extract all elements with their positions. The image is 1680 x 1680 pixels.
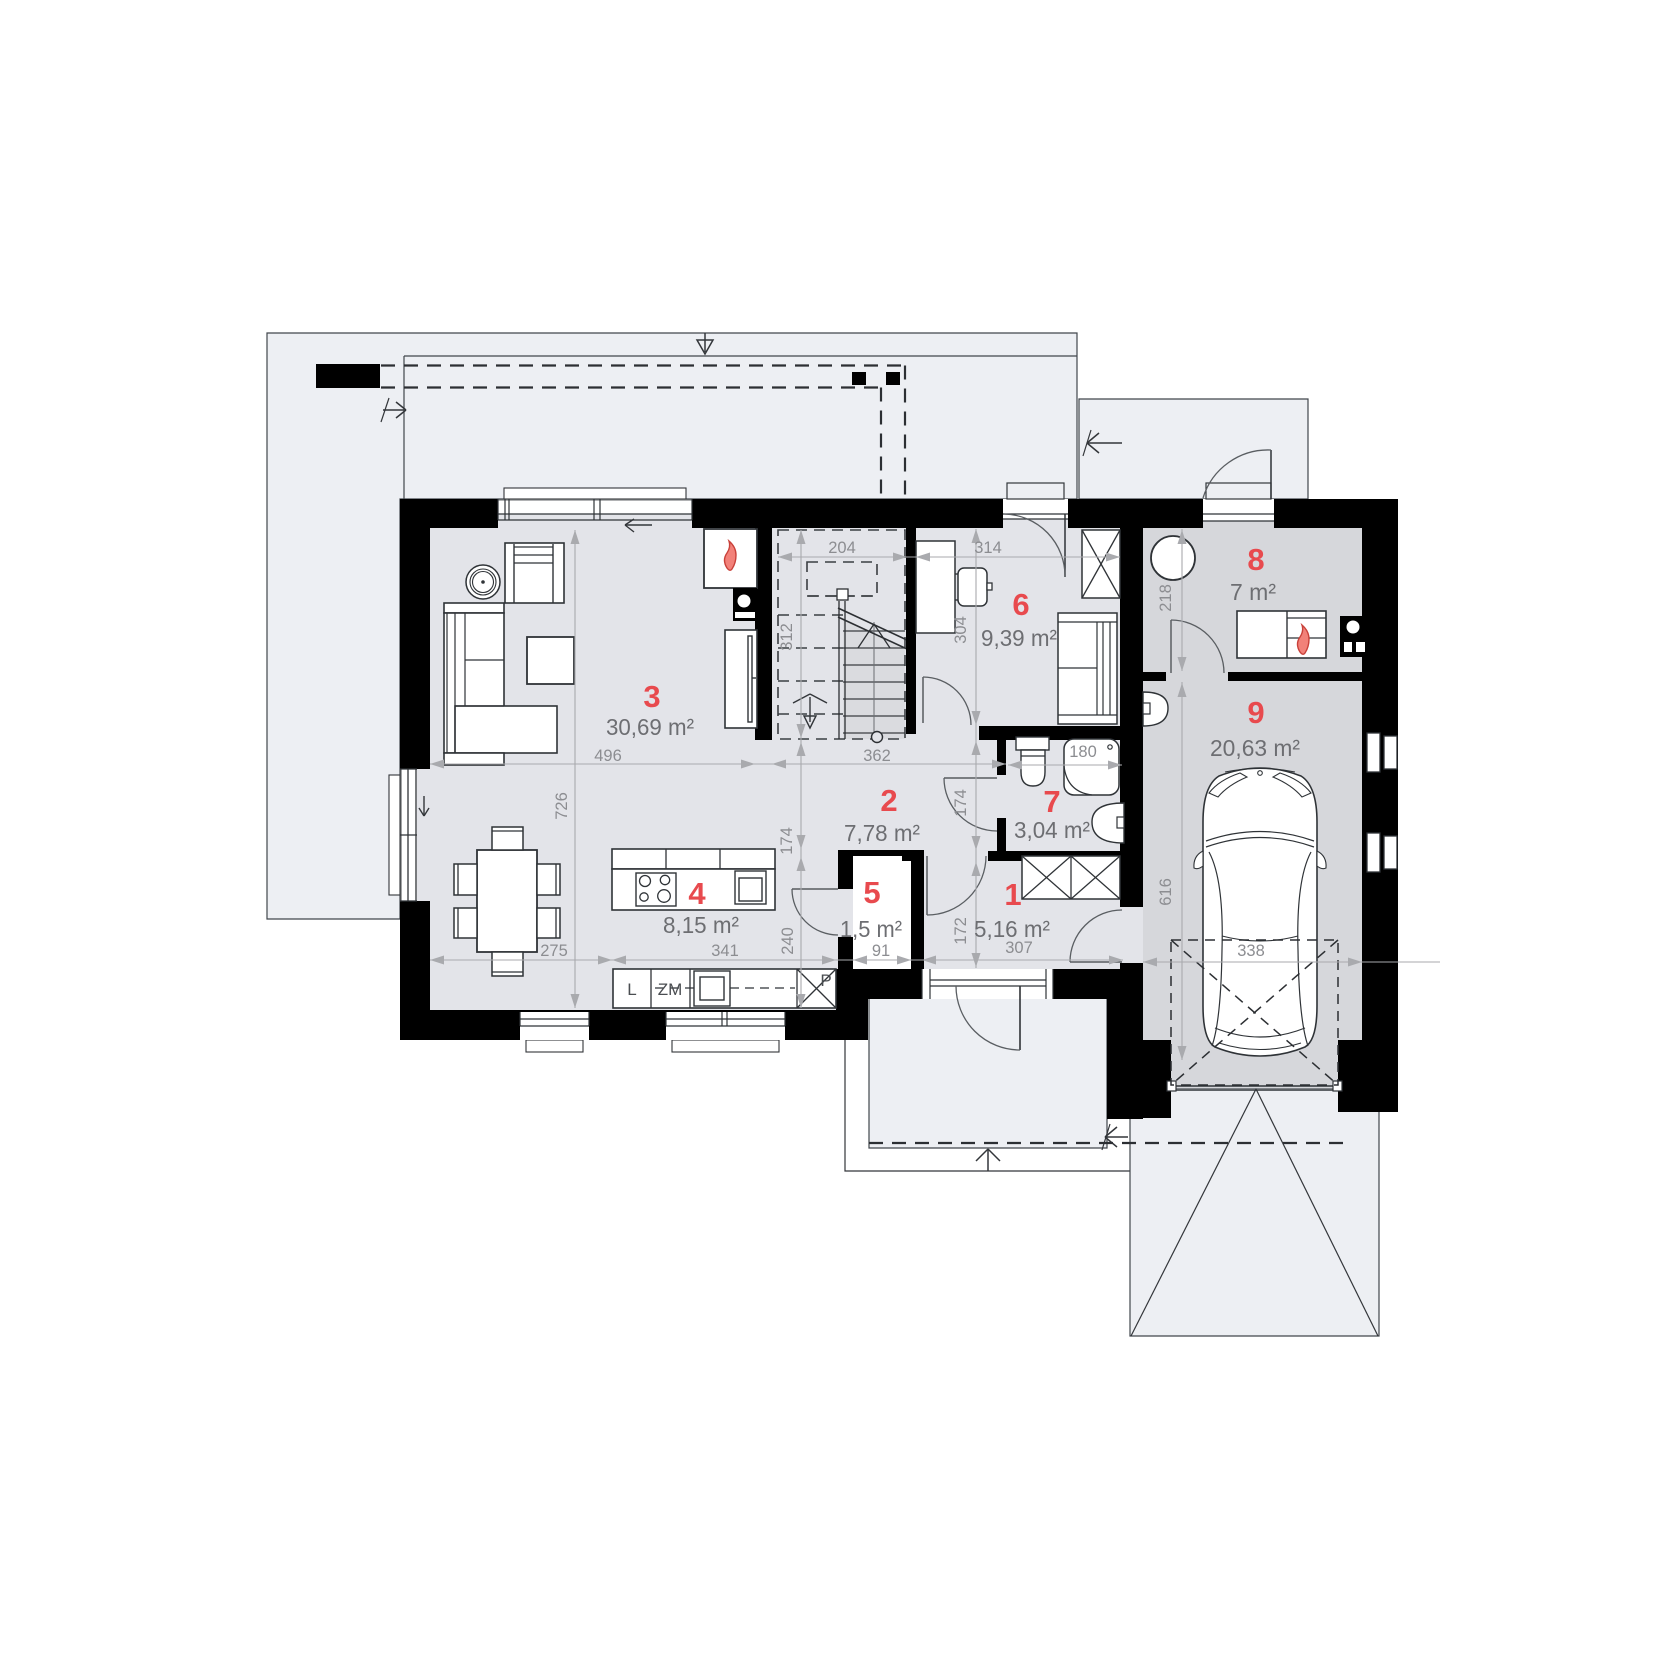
svg-text:7,78 m²: 7,78 m²: [844, 820, 920, 846]
svg-text:P: P: [820, 971, 831, 990]
svg-text:1: 1: [1004, 877, 1021, 912]
svg-text:1,5 m²: 1,5 m²: [840, 916, 902, 942]
svg-text:496: 496: [594, 747, 622, 765]
svg-text:362: 362: [863, 747, 891, 765]
svg-text:218: 218: [1157, 584, 1175, 612]
svg-text:9: 9: [1247, 695, 1264, 730]
svg-text:L: L: [627, 980, 636, 999]
svg-text:3: 3: [643, 679, 660, 714]
svg-text:312: 312: [778, 623, 796, 651]
svg-text:174: 174: [952, 789, 970, 817]
svg-text:240: 240: [779, 927, 797, 955]
svg-text:180: 180: [1069, 743, 1097, 761]
svg-text:9,39 m²: 9,39 m²: [981, 625, 1057, 651]
svg-text:3,04 m²: 3,04 m²: [1014, 817, 1090, 843]
svg-text:172: 172: [952, 917, 970, 945]
svg-text:304: 304: [952, 616, 970, 644]
svg-text:8,15 m²: 8,15 m²: [663, 912, 739, 938]
svg-text:7: 7: [1043, 784, 1060, 819]
svg-text:ZM: ZM: [658, 980, 683, 999]
svg-text:307: 307: [1005, 939, 1033, 957]
svg-text:275: 275: [540, 942, 568, 960]
svg-text:20,63 m²: 20,63 m²: [1210, 735, 1300, 761]
svg-text:91: 91: [872, 942, 890, 960]
svg-text:338: 338: [1237, 942, 1265, 960]
svg-text:174: 174: [778, 827, 796, 855]
svg-text:314: 314: [974, 539, 1002, 557]
svg-text:204: 204: [828, 539, 856, 557]
svg-text:341: 341: [711, 942, 739, 960]
svg-text:6: 6: [1012, 587, 1029, 622]
svg-text:726: 726: [553, 792, 571, 820]
svg-text:30,69 m²: 30,69 m²: [606, 714, 694, 740]
svg-text:7 m²: 7 m²: [1230, 579, 1276, 605]
svg-text:4: 4: [688, 876, 706, 911]
svg-text:5: 5: [863, 875, 880, 910]
svg-text:8: 8: [1247, 542, 1264, 577]
svg-text:2: 2: [880, 783, 897, 818]
svg-text:616: 616: [1157, 878, 1175, 906]
